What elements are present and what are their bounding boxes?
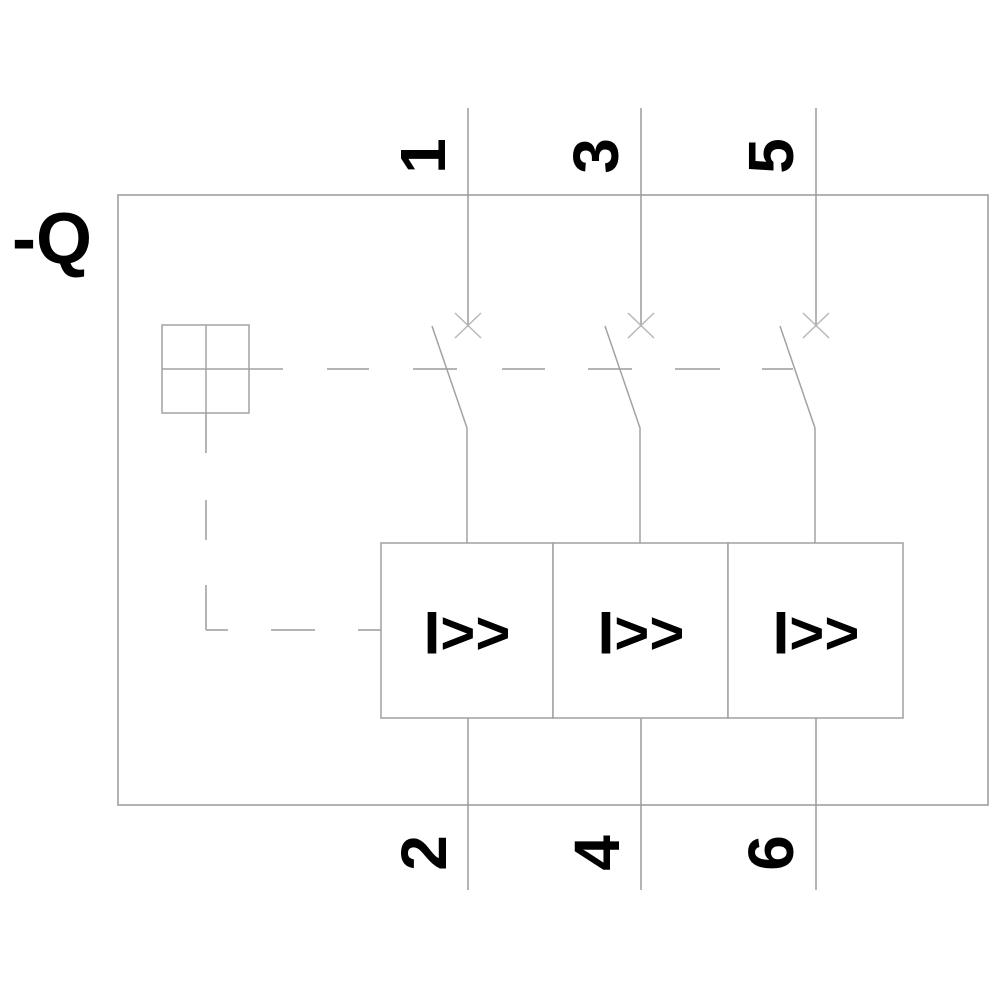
actuator-symbol [162, 325, 283, 413]
terminal-label-4: 4 [561, 835, 633, 871]
pole2-trip-unit-symbol: I>> [598, 600, 685, 667]
terminal-label-2: 2 [388, 835, 460, 871]
pole2-switch-lever [605, 326, 640, 543]
schematic-page: -Q 1 2 I>> 3 [0, 0, 1000, 1000]
terminal-label-6: 6 [735, 835, 807, 871]
pole1-switch-lever [432, 326, 467, 543]
pole-1: 1 2 I>> [381, 108, 553, 890]
pole-2: 3 4 I>> [553, 108, 728, 890]
pole3-trip-unit-symbol: I>> [773, 600, 860, 667]
pole1-trip-unit-symbol: I>> [424, 600, 511, 667]
pole-3: 5 6 I>> [728, 108, 903, 890]
pole3-switch-lever [780, 326, 815, 543]
terminal-label-5: 5 [735, 138, 807, 174]
device-designation: -Q [12, 199, 92, 279]
terminal-label-1: 1 [387, 138, 459, 174]
terminal-label-3: 3 [560, 138, 632, 174]
circuit-diagram: -Q 1 2 I>> 3 [0, 0, 1000, 1000]
